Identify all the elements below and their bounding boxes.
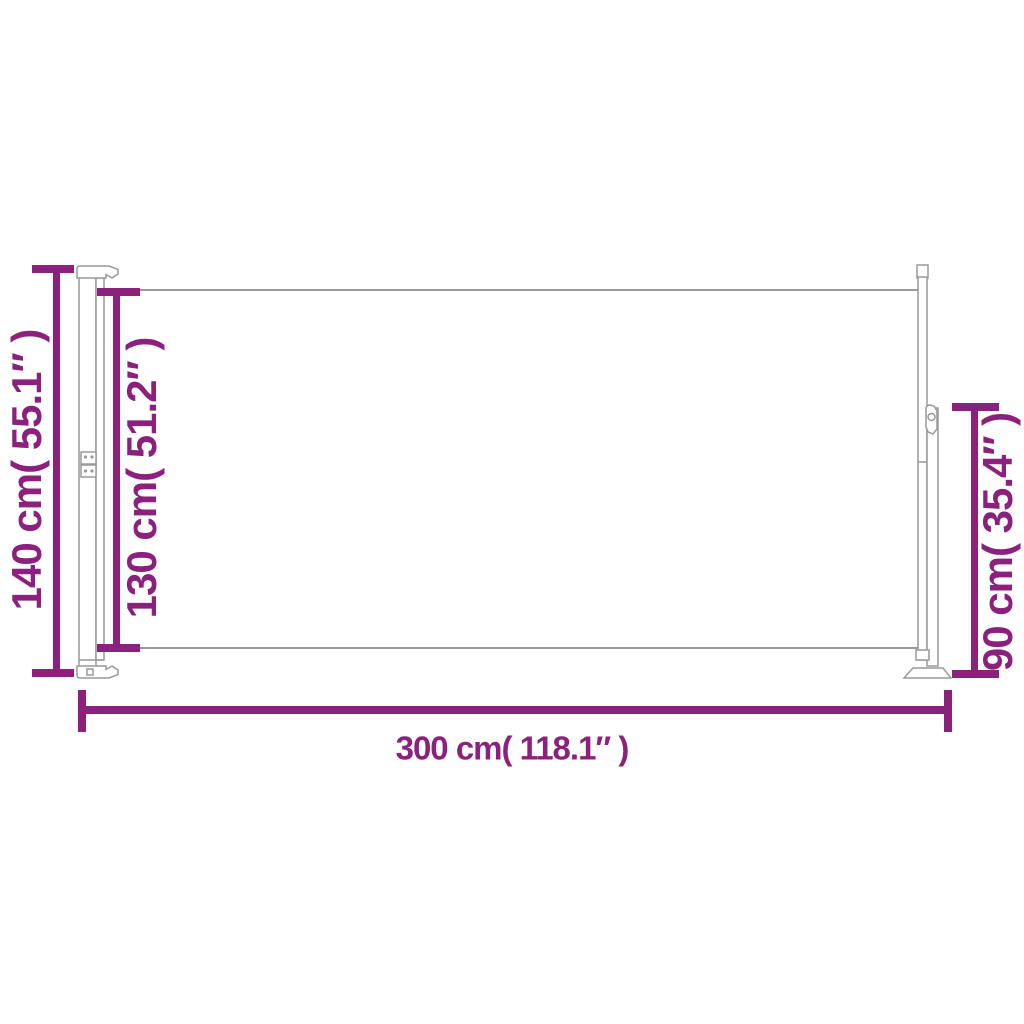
dim-fabric-height-cap-top: [97, 288, 140, 296]
dim-fabric-height-label: 130 cm( 51.2″ ): [121, 338, 163, 619]
right-post-rail: [927, 408, 938, 666]
dim-total-width-label: 300 cm( 118.1″ ): [396, 732, 629, 765]
dim-total-width-tick-right: [944, 690, 952, 732]
right-post-top-cap: [917, 265, 928, 278]
handle: [926, 405, 937, 434]
dim-total-height-label: 140 cm( 55.1″ ): [6, 330, 48, 611]
dim-right-height-label: 90 cm( 35.4″ ): [977, 413, 1019, 671]
dim-total-width-tick-left: [78, 690, 86, 732]
dim-total-width-line: [82, 706, 950, 714]
product-dimension-diagram: 140 cm( 55.1″ ) 130 cm( 51.2″ ) 90 cm( 3…: [0, 0, 1024, 1024]
left-post-top-cap: [77, 266, 118, 278]
dim-total-height-cap-top: [32, 265, 74, 273]
left-post-wall-brackets: [81, 452, 96, 477]
dim-right-height-cap-bottom: [952, 670, 999, 678]
dim-fabric-height-cap-bottom: [97, 644, 140, 652]
dim-total-height-cap-bottom: [32, 669, 74, 677]
left-post-foot: [77, 666, 118, 678]
dim-right-height-cap-top: [952, 403, 999, 411]
dim-total-height-line: [53, 267, 60, 675]
awning-fabric-panel: [100, 290, 920, 648]
